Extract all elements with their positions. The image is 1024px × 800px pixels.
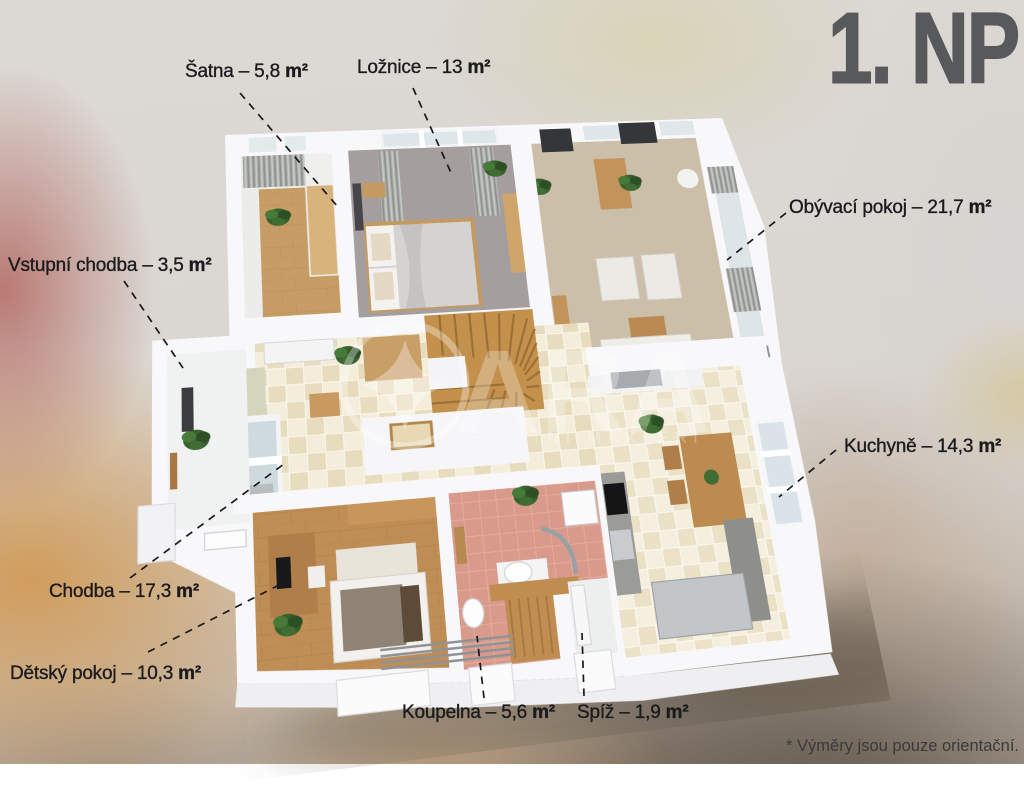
svg-text:REALITNÍ MAKLÉŘI: REALITNÍ MAKLÉŘI bbox=[452, 428, 704, 447]
